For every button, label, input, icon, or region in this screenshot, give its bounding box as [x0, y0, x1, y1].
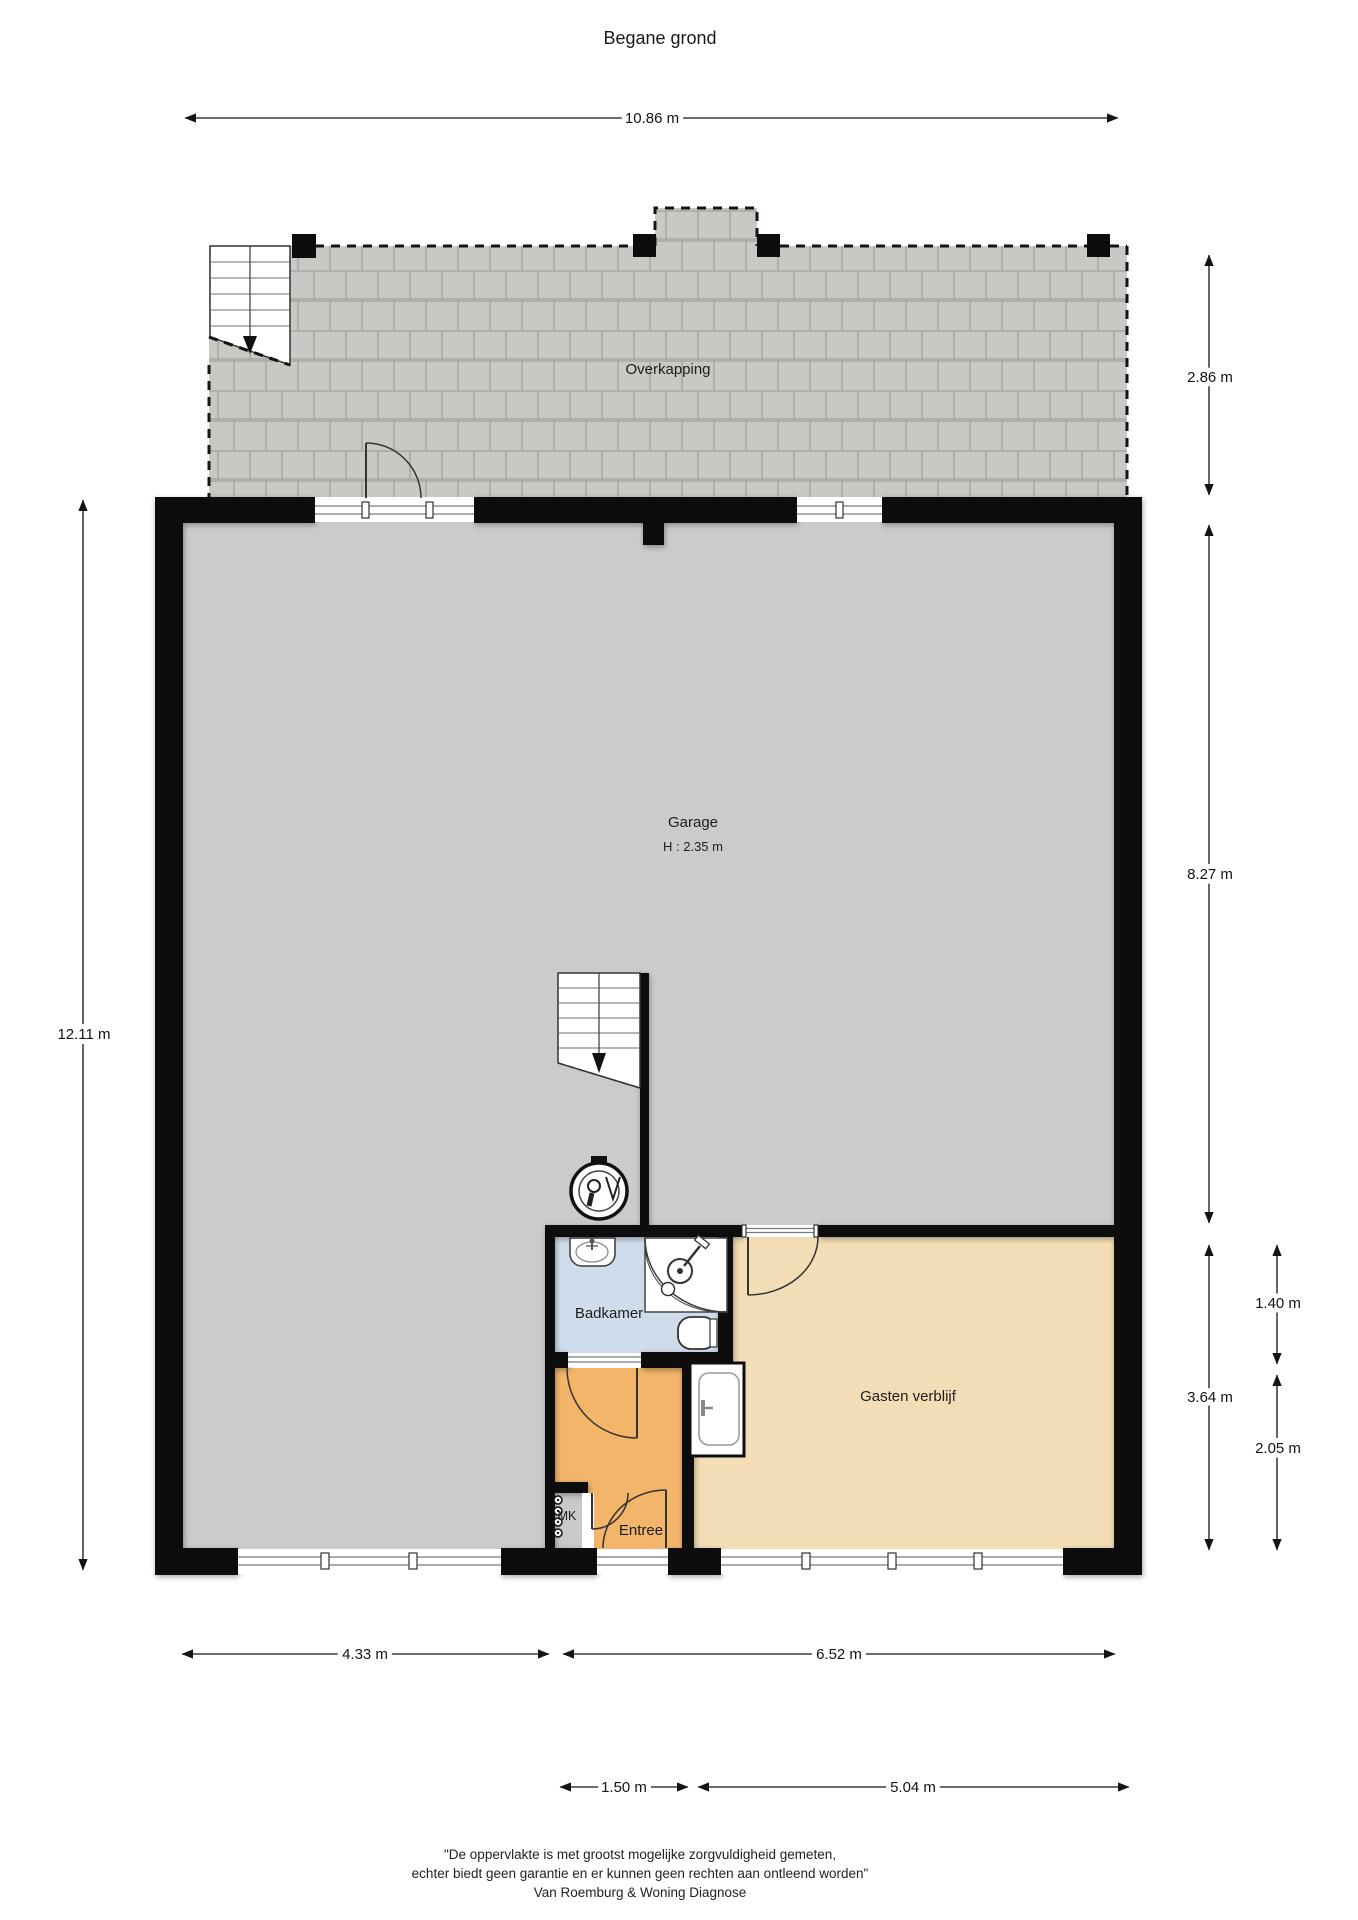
floors — [183, 521, 1118, 1552]
window-top-left — [315, 498, 474, 522]
window-bottom-right — [721, 1549, 1063, 1574]
dim-right-entree: 2.05 m — [1255, 1440, 1301, 1457]
dim-bottom-gasten: 5.04 m — [890, 1779, 936, 1796]
floorplan-drawing: Begane grond — [0, 0, 1358, 1920]
footer-line-2: echter biedt geen garantie en er kunnen … — [412, 1866, 869, 1881]
post-icon — [1087, 234, 1110, 257]
post-icon — [292, 234, 316, 258]
sink-icon — [570, 1238, 615, 1266]
room-label-gasten-verblijf: Gasten verblijf — [860, 1388, 957, 1405]
dim-right-lower-section: 3.64 m — [1187, 1389, 1233, 1406]
dim-right-overkapping: 2.86 m — [1187, 369, 1233, 386]
footer-disclaimer: "De oppervlakte is met grootst mogelijke… — [412, 1847, 869, 1900]
room-label-badkamer: Badkamer — [575, 1305, 643, 1322]
meterkast-wall — [548, 1482, 588, 1493]
footer-line-3: Van Roemburg & Woning Diagnose — [534, 1885, 747, 1900]
stairs-wall — [640, 973, 649, 1225]
wall-stub — [643, 523, 664, 545]
room-label-entree: Entree — [619, 1522, 663, 1539]
room-label-garage: Garage — [668, 814, 718, 831]
post-icon — [633, 234, 656, 257]
window-bottom-left — [238, 1549, 501, 1574]
toilet-icon — [678, 1317, 717, 1349]
dim-left-height: 12.11 m — [57, 1026, 110, 1043]
shower-icon — [645, 1235, 727, 1312]
floorplan-page: Begane grond — [0, 0, 1358, 1920]
dim-top-width: 10.86 m — [625, 110, 679, 127]
page-title: Begane grond — [603, 28, 716, 48]
footer-line-1: "De oppervlakte is met grootst mogelijke… — [444, 1847, 836, 1862]
room-label-meterkast: MK — [558, 1509, 577, 1523]
room-height-garage: H : 2.35 m — [663, 839, 723, 854]
window-top-right — [797, 498, 882, 522]
dim-right-badkamer: 1.40 m — [1255, 1295, 1301, 1312]
dim-bottom-entree: 1.50 m — [601, 1779, 647, 1796]
washbasin-icon — [690, 1363, 744, 1456]
room-label-overkapping: Overkapping — [625, 361, 710, 378]
overkapping-area: Overkapping — [209, 208, 1127, 497]
dim-bottom-garage: 4.33 m — [342, 1646, 388, 1663]
post-icon — [757, 234, 780, 257]
dim-right-garage: 8.27 m — [1187, 866, 1233, 883]
dim-bottom-right-section: 6.52 m — [816, 1646, 862, 1663]
paving-bumpout — [655, 208, 757, 246]
